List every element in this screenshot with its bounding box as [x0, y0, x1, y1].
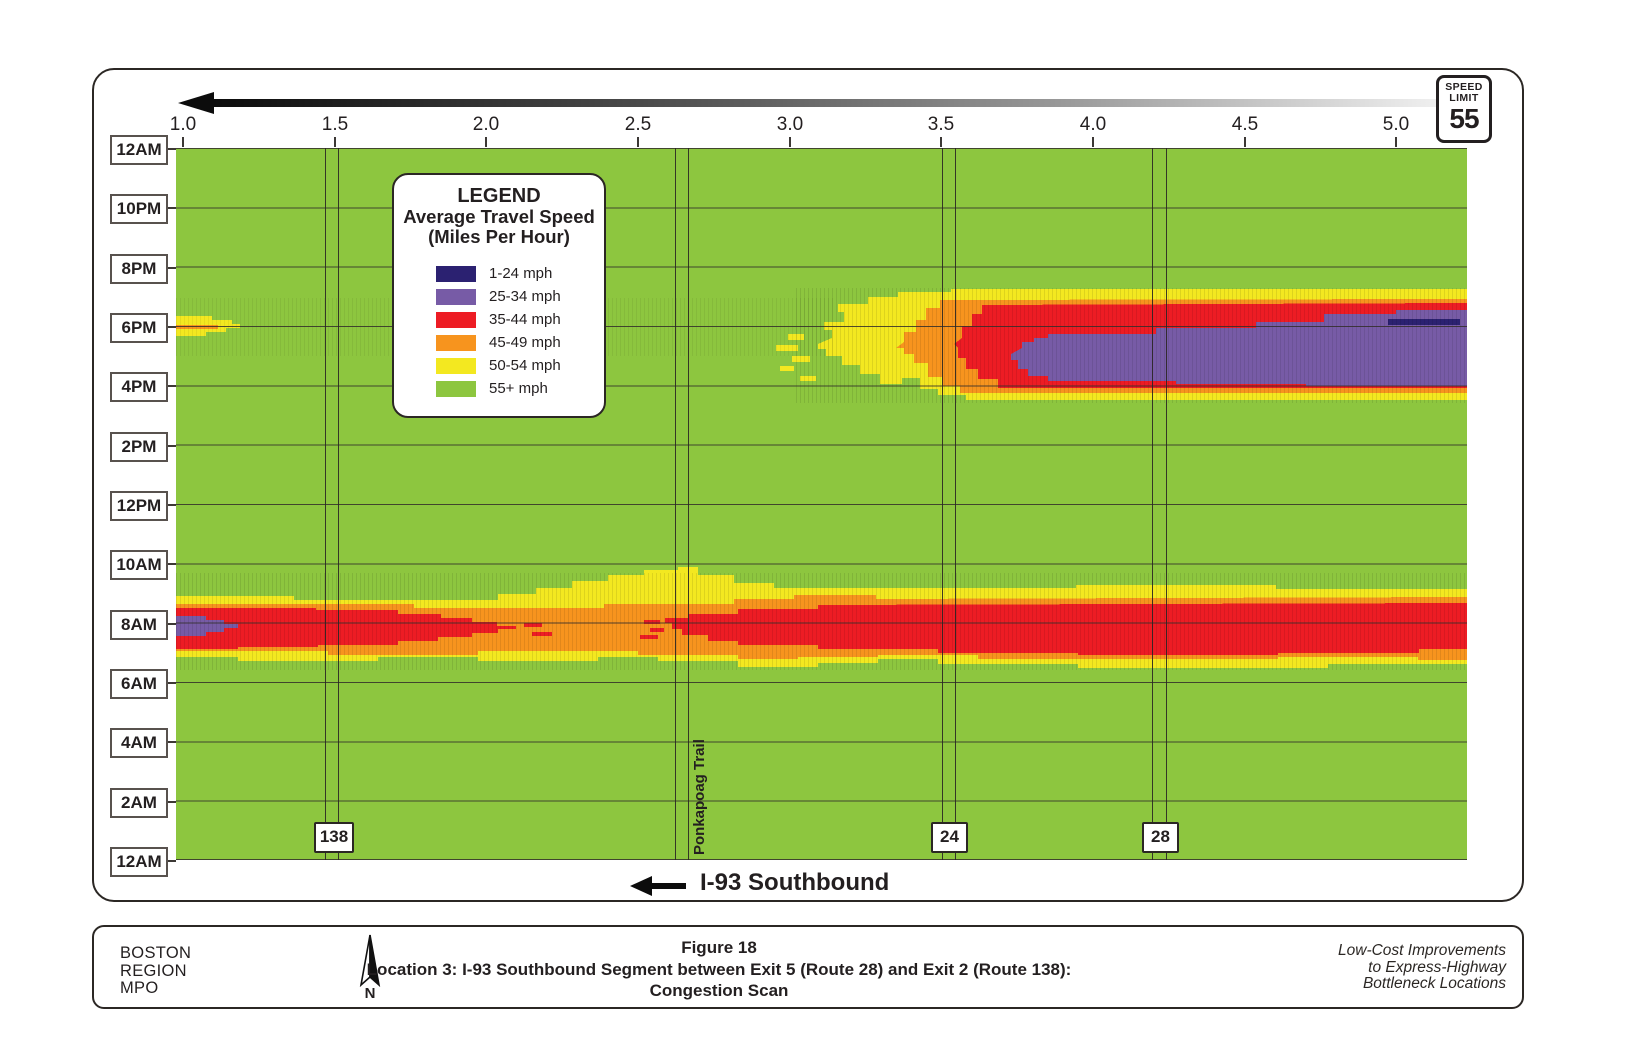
legend-entry: 35-44 mph [394, 308, 604, 331]
legend-entry: 55+ mph [394, 377, 604, 400]
time-axis-label: 12AM [110, 847, 168, 877]
mile-tick-mark [1395, 137, 1397, 147]
flow-direction-arrow-bar [212, 99, 1436, 107]
report-title: Low-Cost Improvements to Express-Highway… [1338, 943, 1506, 993]
time-axis-label: 6AM [110, 669, 168, 699]
agency-line: REGION [120, 963, 191, 981]
figure-number: Figure 18 [279, 937, 1159, 959]
time-axis-label: 10PM [110, 194, 168, 224]
mile-tick-label: 1.5 [305, 114, 365, 136]
legend-title: LEGEND [394, 185, 604, 207]
mile-tick-label: 3.0 [760, 114, 820, 136]
route-shield-24: 24 [931, 822, 968, 853]
speed-limit-sign: SPEED LIMIT 55 [1436, 75, 1492, 143]
time-axis-label: 12PM [110, 491, 168, 521]
legend-swatch-navy [436, 266, 476, 282]
direction-label: I-93 Southbound [700, 869, 889, 897]
mile-tick-label: 2.5 [608, 114, 668, 136]
agency-line: BOSTON [120, 945, 191, 963]
legend-swatch-yellow [436, 358, 476, 374]
legend: LEGEND Average Travel Speed (Miles Per H… [392, 173, 606, 418]
legend-entry: 1-24 mph [394, 262, 604, 285]
figure-location: Location 3: I-93 Southbound Segment betw… [279, 959, 1159, 981]
time-axis-label: 4AM [110, 728, 168, 758]
report-title-line: Bottleneck Locations [1338, 976, 1506, 993]
route-shield-28: 28 [1142, 822, 1179, 853]
mile-tick-label: 5.0 [1366, 114, 1426, 136]
congestion-heatmap [176, 148, 1467, 860]
mile-tick-label: 1.0 [153, 114, 213, 136]
mile-tick-mark [334, 137, 336, 147]
legend-entry-label: 25-34 mph [489, 288, 561, 305]
flow-direction-arrowhead-icon [178, 92, 214, 114]
legend-entry-label: 1-24 mph [489, 265, 552, 282]
report-title-line: to Express-Highway [1338, 960, 1506, 977]
figure-title: Figure 18 Location 3: I-93 Southbound Se… [279, 937, 1159, 1002]
legend-swatch-orange [436, 335, 476, 351]
mile-tick-label: 4.5 [1215, 114, 1275, 136]
footer-panel: BOSTON REGION MPO N Figure 18 Location 3… [92, 925, 1524, 1009]
legend-swatch-purple [436, 289, 476, 305]
ponkapoag-trail-label: Ponkapoag Trail [691, 739, 708, 855]
page: SPEED LIMIT 55 1.0 1.5 2.0 2.5 3.0 3.5 4… [0, 0, 1632, 1056]
legend-entry-label: 35-44 mph [489, 311, 561, 328]
legend-entry-label: 45-49 mph [489, 334, 561, 351]
legend-entries: 1-24 mph 25-34 mph 35-44 mph 45-49 mph 5… [394, 262, 604, 400]
speed-limit-value: 55 [1439, 104, 1489, 134]
time-axis-label: 4PM [110, 372, 168, 402]
legend-entry: 45-49 mph [394, 331, 604, 354]
route-shield-138: 138 [314, 822, 354, 853]
time-axis-label: 2PM [110, 432, 168, 462]
legend-entry: 50-54 mph [394, 354, 604, 377]
mile-tick-label: 4.0 [1063, 114, 1123, 136]
figure-subtitle: Congestion Scan [279, 980, 1159, 1002]
mile-tick-mark [485, 137, 487, 147]
mile-tick-mark [940, 137, 942, 147]
time-axis-label: 2AM [110, 788, 168, 818]
southbound-arrow-shaft [650, 883, 686, 889]
legend-swatch-green [436, 381, 476, 397]
mile-tick-mark [637, 137, 639, 147]
time-axis-label: 12AM [110, 135, 168, 165]
time-axis-label: 8AM [110, 610, 168, 640]
agency-name: BOSTON REGION MPO [120, 945, 191, 998]
mile-tick-mark [789, 137, 791, 147]
legend-entry: 25-34 mph [394, 285, 604, 308]
legend-swatch-red [436, 312, 476, 328]
legend-entry-label: 55+ mph [489, 380, 548, 397]
mile-tick-label: 2.0 [456, 114, 516, 136]
report-title-line: Low-Cost Improvements [1338, 943, 1506, 960]
mile-tick-label: 3.5 [911, 114, 971, 136]
legend-entry-label: 50-54 mph [489, 357, 561, 374]
time-axis-label: 6PM [110, 313, 168, 343]
mile-tick-mark [1244, 137, 1246, 147]
time-axis-label: 10AM [110, 550, 168, 580]
agency-line: MPO [120, 980, 191, 998]
legend-subtitle: Average Travel Speed [394, 207, 604, 227]
mile-tick-mark [1092, 137, 1094, 147]
mile-tick-mark [182, 137, 184, 147]
time-axis-label: 8PM [110, 254, 168, 284]
legend-subtitle: (Miles Per Hour) [394, 227, 604, 247]
southbound-arrowhead-icon [630, 876, 652, 896]
